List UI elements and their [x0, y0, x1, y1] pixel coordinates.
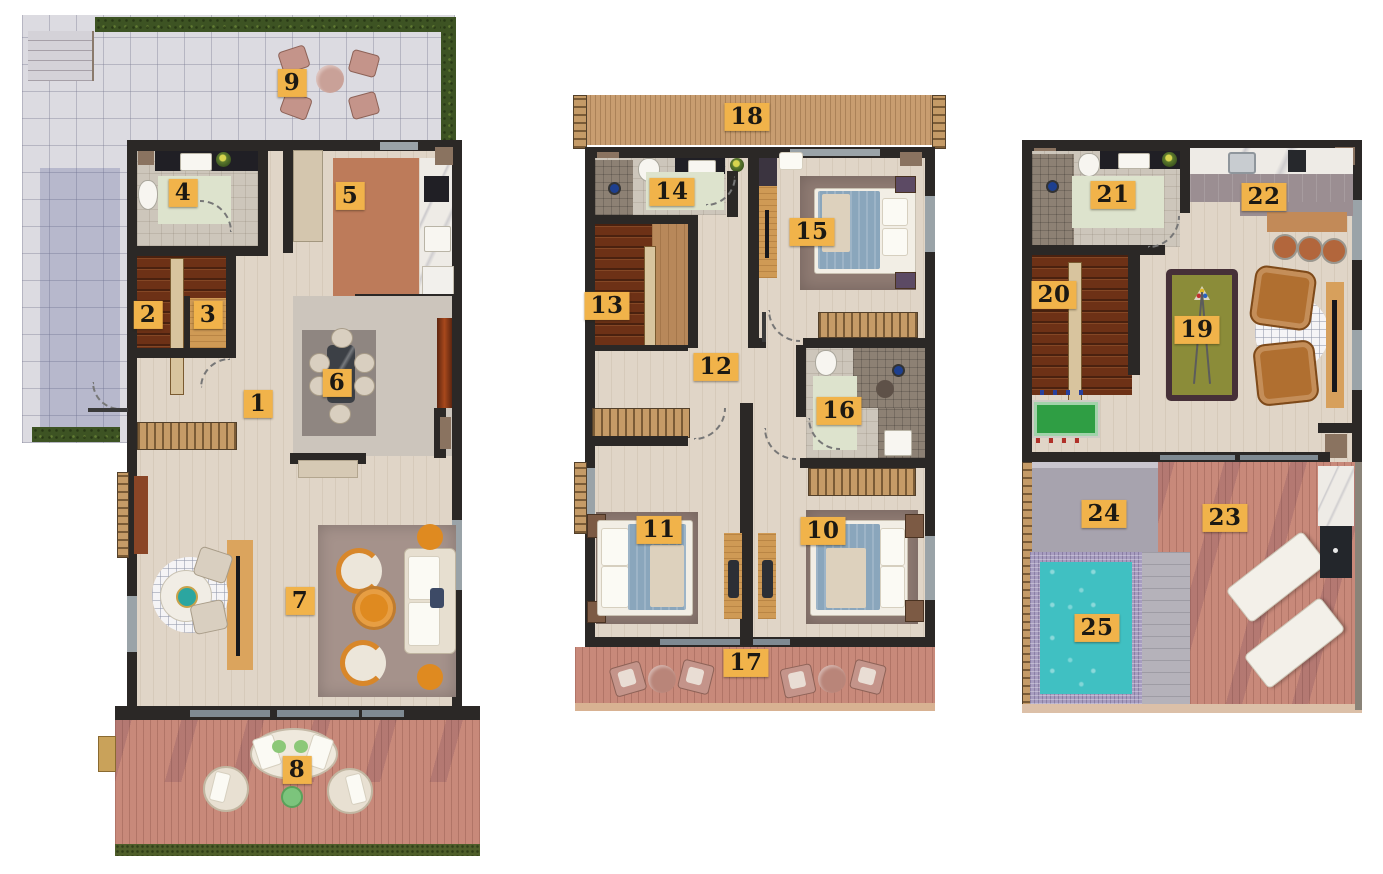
- room-marker-22: 22: [1241, 183, 1286, 211]
- room-marker-19: 19: [1174, 316, 1219, 344]
- room-marker-5: 5: [336, 182, 365, 210]
- room-marker-2: 2: [134, 301, 163, 329]
- room-marker-11: 11: [636, 516, 681, 544]
- room-number-markers: 1234567891011121314151617181920212223242…: [0, 0, 1383, 874]
- room-marker-23: 23: [1202, 504, 1247, 532]
- room-marker-1: 1: [244, 390, 273, 418]
- room-marker-15: 15: [789, 218, 834, 246]
- room-marker-8: 8: [283, 756, 312, 784]
- room-marker-10: 10: [800, 517, 845, 545]
- room-marker-3: 3: [194, 301, 223, 329]
- room-marker-4: 4: [169, 179, 198, 207]
- room-marker-20: 20: [1031, 281, 1076, 309]
- floor-plan-sheet: 1234567891011121314151617181920212223242…: [0, 0, 1383, 874]
- room-marker-25: 25: [1074, 614, 1119, 642]
- room-marker-14: 14: [649, 178, 694, 206]
- room-marker-16: 16: [816, 397, 861, 425]
- room-marker-24: 24: [1081, 500, 1126, 528]
- room-marker-7: 7: [286, 587, 315, 615]
- room-marker-6: 6: [323, 369, 352, 397]
- room-marker-12: 12: [693, 353, 738, 381]
- room-marker-9: 9: [278, 69, 307, 97]
- room-marker-17: 17: [723, 649, 768, 677]
- room-marker-18: 18: [724, 103, 769, 131]
- room-marker-21: 21: [1090, 181, 1135, 209]
- room-marker-13: 13: [584, 292, 629, 320]
